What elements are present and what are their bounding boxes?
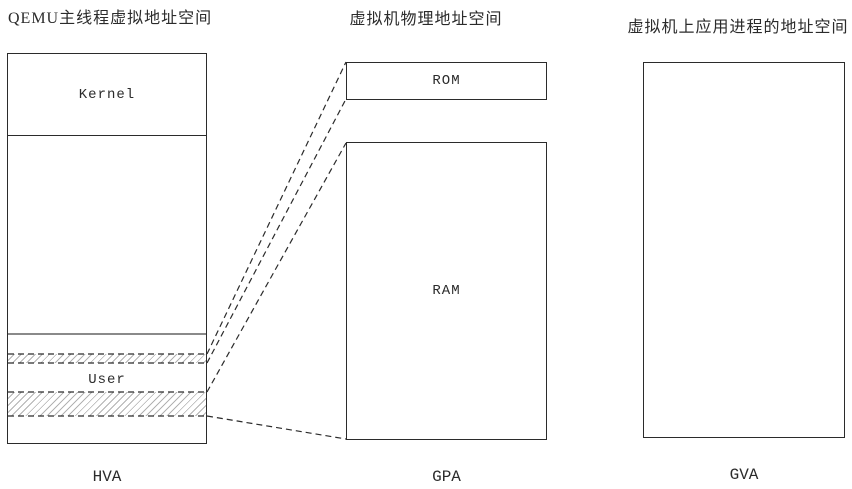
ram-box-label: RAM — [432, 283, 460, 299]
gva-column-title: 虚拟机上应用进程的地址空间 — [596, 13, 852, 37]
kernel-region-label: Kernel — [79, 87, 135, 103]
ram-mapped-region-hatch — [8, 392, 206, 416]
hva-axis-label: HVA — [7, 468, 207, 486]
gva-address-space-box — [643, 62, 845, 438]
gpa-axis-label: GPA — [346, 468, 547, 486]
gva-axis-label: GVA — [643, 466, 845, 484]
user-region-label: User — [88, 372, 126, 388]
hva-to-ram-bottom-connector — [207, 416, 346, 439]
rom-box-label: ROM — [432, 73, 460, 89]
ram-box: RAM — [346, 142, 547, 440]
hva-to-rom-top-connector — [207, 62, 346, 354]
user-region: User — [8, 367, 206, 392]
hva-to-rom-bottom-connector — [207, 99, 346, 363]
gpa-column-title: 虚拟机物理地址空间 — [284, 5, 568, 29]
user-space-divider-line — [8, 333, 206, 335]
hva-column-title: QEMU主线程虚拟地址空间 — [8, 4, 208, 28]
rom-box: ROM — [346, 62, 547, 100]
hva-to-ram-top-connector — [207, 143, 346, 392]
kernel-region: Kernel — [8, 54, 206, 136]
hva-address-space-box: Kernel User — [7, 53, 207, 444]
rom-mapped-region-hatch — [8, 354, 206, 363]
memory-mapping-diagram: QEMU主线程虚拟地址空间 虚拟机物理地址空间 虚拟机上应用进程的地址空间 Ke… — [0, 0, 852, 489]
